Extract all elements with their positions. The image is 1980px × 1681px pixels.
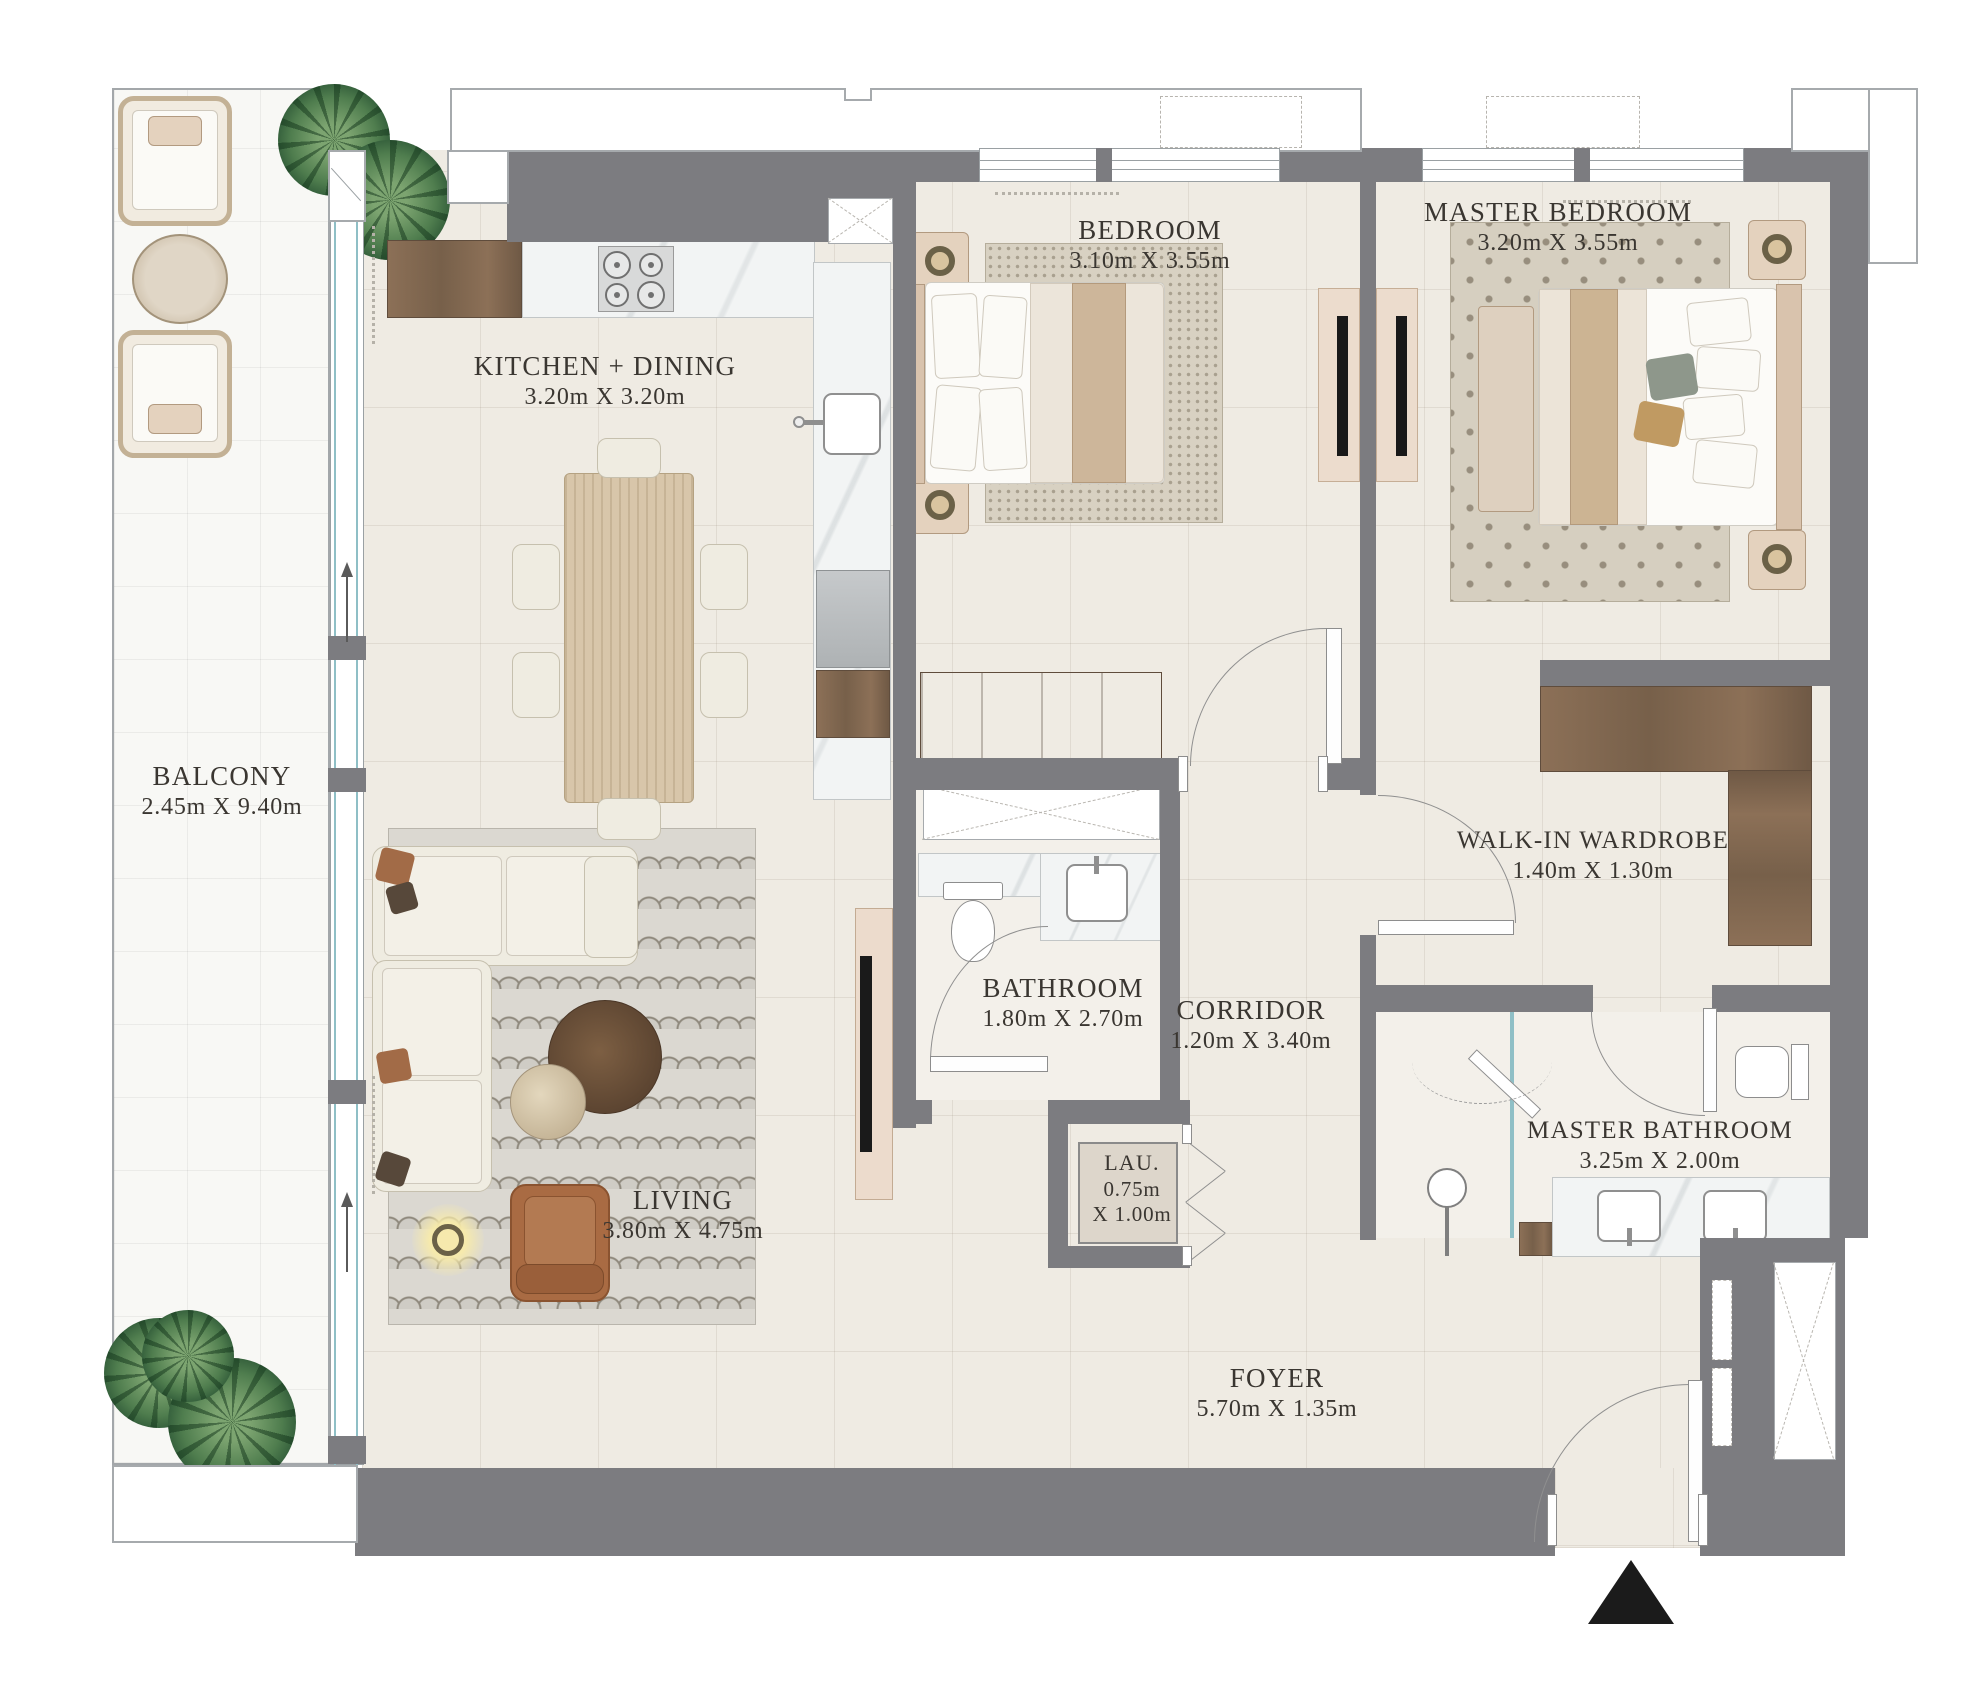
- bed-pillow: [978, 295, 1028, 380]
- master-bed-throw: [1570, 289, 1618, 525]
- laundry-label: LAU. 0.75m X 1.00m: [1076, 1150, 1188, 1228]
- master-bathroom-label: MASTER BATHROOM 3.25m X 2.00m: [1510, 1116, 1810, 1176]
- bedroom-master-divider-wall: [1360, 182, 1376, 795]
- bathroom-bottom-wall: [916, 1100, 932, 1124]
- master-bed-pillow: [1686, 297, 1752, 347]
- wardrobe-unit-horizontal: [1540, 686, 1812, 772]
- balcony-bottom-ledge: [112, 1465, 358, 1543]
- kitchen-dining-label: KITCHEN + DINING 3.20m X 3.20m: [455, 350, 755, 412]
- void-column: [447, 150, 509, 204]
- balcony-armchair-2-pillow: [148, 404, 202, 434]
- floor-lamp-icon: [432, 1224, 464, 1256]
- toilet-icon: [943, 882, 1003, 900]
- armchair-back: [516, 1264, 604, 1294]
- door-jamb: [1698, 1494, 1708, 1546]
- bed-bench: [1478, 306, 1534, 512]
- tv-icon: [1337, 316, 1348, 456]
- roof-void-notch: [844, 88, 872, 101]
- dining-chair: [700, 652, 748, 718]
- window-corner-block: [328, 150, 366, 222]
- bedroom-bottom-wall: [893, 758, 1185, 790]
- room-dims: 5.70m X 1.35m: [1157, 1395, 1397, 1424]
- main-vertical-wall: [893, 182, 916, 1128]
- bedroom-wardrobe: [920, 672, 1162, 762]
- master-bathroom-top-wall: [1360, 985, 1593, 1012]
- master-bed-headboard: [1776, 284, 1802, 530]
- room-dims: 1.40m X 1.30m: [1443, 857, 1743, 886]
- stove-icon: [598, 246, 674, 312]
- table-lamp-icon: [925, 490, 955, 520]
- stove-burner-icon: [639, 253, 663, 277]
- dining-table: [564, 473, 694, 803]
- dining-chair: [700, 544, 748, 610]
- dining-chair: [597, 438, 661, 478]
- window-mullion: [1574, 148, 1590, 182]
- kitchen-end-cabinet: [816, 670, 890, 738]
- kitchen-cabinet: [387, 240, 522, 318]
- bed-throw: [1072, 283, 1126, 483]
- bedroom-door-leaf: [1326, 628, 1342, 764]
- curtain-icon: [995, 192, 1119, 195]
- kitchen-sink-icon: [823, 393, 881, 455]
- room-dims: 3.20m X 3.55m: [1408, 229, 1708, 258]
- bed-pillow: [929, 384, 982, 472]
- shower-head-icon: [1427, 1168, 1467, 1208]
- top-wall-segment: [1744, 148, 1868, 182]
- top-wall-segment: [893, 148, 979, 182]
- ac-ledge-dashed-box: [1160, 96, 1302, 148]
- room-name: LIVING: [563, 1184, 803, 1217]
- sofa-chaise: [584, 856, 638, 958]
- master-bed-accent-pillow: [1633, 400, 1686, 448]
- laundry-bottom-wall: [1048, 1246, 1190, 1268]
- door-jamb: [1318, 756, 1328, 792]
- room-dims: 3.20m X 3.20m: [455, 383, 755, 412]
- entry-arrow-head-icon: [341, 1192, 353, 1207]
- room-name: WALK-IN WARDROBE: [1443, 826, 1743, 857]
- room-name: CORRIDOR: [1131, 994, 1371, 1027]
- window-glass-line: [980, 160, 1279, 161]
- window-mullion: [1096, 148, 1112, 182]
- laundry-left-wall: [1048, 1100, 1068, 1268]
- window-glass-line: [980, 169, 1279, 170]
- room-dims: 1.20m X 3.40m: [1131, 1027, 1371, 1056]
- dishwasher: [816, 570, 890, 668]
- shower-tray: [923, 786, 1160, 840]
- wall-slot: [1712, 1280, 1732, 1360]
- window-glass-line: [356, 150, 358, 1465]
- curtain-icon: [372, 226, 375, 344]
- bottom-exterior-wall: [355, 1468, 1555, 1556]
- shower-head-stem: [1445, 1206, 1449, 1256]
- room-name: LAU.: [1076, 1150, 1188, 1177]
- floor-plan: BALCONY 2.45m X 9.40m KITCHEN + DINING 3…: [0, 0, 1980, 1681]
- living-label: LIVING 3.80m X 4.75m: [563, 1184, 803, 1246]
- balcony-round-table: [132, 234, 228, 324]
- master-suite-door-leaf: [1378, 920, 1514, 935]
- bathroom-door-leaf: [930, 1056, 1048, 1072]
- window-mullion: [328, 1080, 366, 1104]
- master-toilet-icon: [1735, 1046, 1789, 1098]
- walk-in-wardrobe-label: WALK-IN WARDROBE 1.40m X 1.30m: [1443, 826, 1743, 886]
- door-jamb: [1547, 1494, 1557, 1546]
- room-name: KITCHEN + DINING: [455, 350, 755, 383]
- room-dims: X 1.00m: [1076, 1202, 1188, 1228]
- bed-pillow: [931, 293, 981, 379]
- corridor-label: CORRIDOR 1.20m X 3.40m: [1131, 994, 1371, 1056]
- sofa-throw-pillow: [375, 1047, 412, 1084]
- room-name: BALCONY: [92, 760, 352, 793]
- room-dims: 3.25m X 2.00m: [1510, 1147, 1810, 1176]
- master-bed-pillow: [1692, 439, 1758, 489]
- stove-burner-icon: [637, 281, 665, 309]
- stove-burner-icon: [603, 251, 631, 279]
- right-exterior-wall: [1830, 182, 1868, 1238]
- master-bedroom-label: MASTER BEDROOM 3.20m X 3.55m: [1408, 196, 1708, 258]
- master-bed-accent-pillow: [1645, 353, 1699, 402]
- balcony-armchair-pillow: [148, 116, 202, 146]
- room-name: BEDROOM: [1010, 214, 1290, 247]
- bedroom-label: BEDROOM 3.10m X 3.55m: [1010, 214, 1290, 276]
- tv-icon: [860, 956, 872, 1152]
- stove-burner-icon: [605, 283, 629, 307]
- entry-arrow-head-icon: [341, 562, 353, 577]
- entry-arrow-icon: [346, 1206, 348, 1272]
- master-faucet-icon: [1627, 1228, 1632, 1246]
- coffee-table-marble: [510, 1064, 586, 1140]
- foyer-label: FOYER 5.70m X 1.35m: [1157, 1362, 1397, 1424]
- window-corner-diagonal: [331, 168, 361, 201]
- entry-arrow-icon: [346, 576, 348, 642]
- room-dims: 2.45m X 9.40m: [92, 793, 352, 822]
- table-lamp-icon: [1762, 544, 1792, 574]
- shaft-hatch-box-tall: [1774, 1262, 1836, 1460]
- room-dims: 3.80m X 4.75m: [563, 1217, 803, 1246]
- door-jamb: [1178, 756, 1188, 792]
- ac-ledge-dashed-box: [1486, 96, 1640, 148]
- room-dims: 0.75m: [1076, 1177, 1188, 1203]
- master-toilet-tank: [1791, 1044, 1809, 1100]
- room-name: FOYER: [1157, 1362, 1397, 1395]
- top-wall-segment: [1280, 148, 1422, 182]
- corner-block: [1868, 88, 1918, 264]
- door-jamb: [1182, 1246, 1192, 1266]
- window-mullion: [328, 1436, 366, 1464]
- shaft-hatch-box: [828, 198, 893, 244]
- shower-mat: [1519, 1222, 1553, 1256]
- curtain-icon: [372, 1076, 375, 1194]
- table-lamp-icon: [925, 246, 955, 276]
- master-bed-pillow: [1682, 393, 1745, 440]
- wardrobe-top-wall: [1540, 660, 1830, 686]
- master-bathroom-top-wall: [1712, 985, 1830, 1012]
- master-bed-pillow: [1695, 346, 1762, 392]
- tv-icon: [1396, 316, 1407, 456]
- master-bathroom-door-leaf: [1703, 1008, 1717, 1112]
- bedroom-window: [979, 148, 1280, 182]
- room-dims: 3.10m X 3.55m: [1010, 247, 1290, 276]
- shower-swing-arc: [1412, 1020, 1552, 1104]
- laundry-top-wall: [1048, 1100, 1190, 1124]
- bed-pillow: [978, 387, 1028, 472]
- wall-slot: [1712, 1368, 1732, 1446]
- dining-chair: [512, 652, 560, 718]
- room-name: MASTER BEDROOM: [1408, 196, 1708, 229]
- kitchen-faucet-icon: [793, 416, 805, 428]
- palm-plant-icon: [142, 1310, 234, 1402]
- dining-chair: [512, 544, 560, 610]
- table-lamp-icon: [1762, 234, 1792, 264]
- dining-chair: [597, 798, 661, 840]
- room-name: MASTER BATHROOM: [1510, 1116, 1810, 1147]
- balcony-label: BALCONY 2.45m X 9.40m: [92, 760, 352, 822]
- bedroom-master-divider-wall: [1360, 935, 1376, 1240]
- door-jamb: [1182, 1124, 1192, 1144]
- entrance-marker-icon: [1588, 1560, 1674, 1624]
- bathroom-faucet-icon: [1094, 856, 1099, 874]
